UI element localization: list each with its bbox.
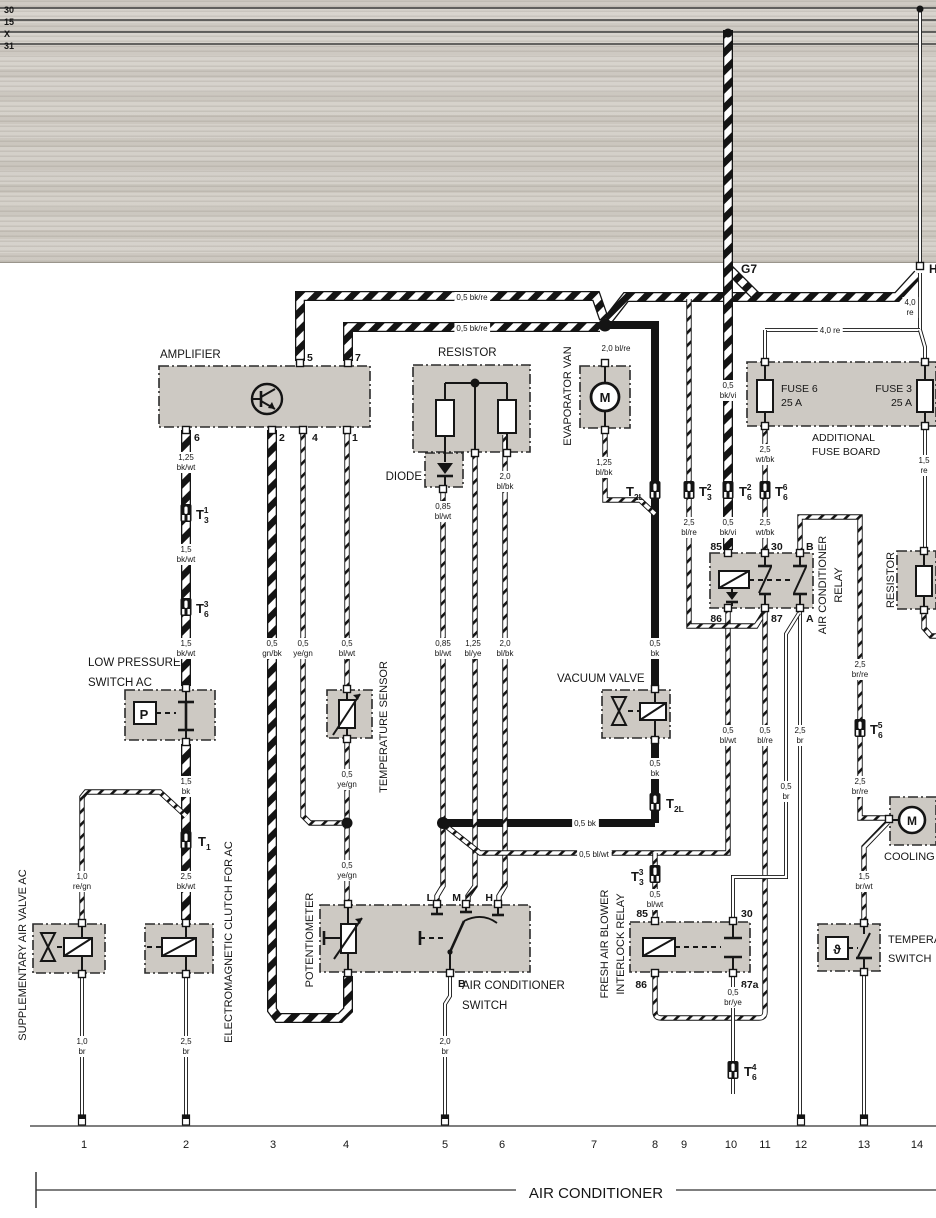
node-h: H <box>929 262 936 276</box>
wire_labels: 2,0 bl/re <box>602 344 631 353</box>
terminal_labels: 86 <box>635 979 647 991</box>
connector-t6-4 <box>728 1061 739 1079</box>
conn-t3-3: T33 <box>631 867 644 887</box>
transistor-symbol <box>251 384 282 414</box>
terminal_labels: 7 <box>355 352 361 364</box>
label-low-pressure-2: SWITCH AC <box>88 677 152 689</box>
label-amplifier: AMPLIFIER <box>160 349 221 361</box>
label-fuse3-amps: 25 A <box>891 397 912 409</box>
wire-amp4-column-overlay <box>303 430 342 823</box>
label-potentiometer: POTENTIOMETER <box>304 893 316 988</box>
terminal_labels: B <box>806 541 814 553</box>
track_numbers: 3 <box>270 1139 276 1151</box>
label-low-pressure-1: LOW PRESSURE <box>88 657 181 669</box>
label-fuse-board: FUSE BOARD <box>812 446 881 458</box>
wire-regn-branch-overlay <box>82 792 186 920</box>
track_numbers: 6 <box>499 1139 505 1151</box>
wire-blwt-horizontal <box>446 611 728 853</box>
terminal_labels: 30 <box>741 908 753 920</box>
wire_labels: 1,25bk/wt <box>177 453 196 472</box>
label-evaporator-van: EVAPORATOR VAN <box>562 346 574 445</box>
conn-t6-3: T63 <box>196 599 209 619</box>
terminal_labels: 2 <box>279 432 285 444</box>
track_numbers: 14 <box>911 1139 923 1151</box>
label-fuse6-amps: 25 A <box>781 397 802 409</box>
label-cooling-fan: COOLING FAN <box>884 851 936 863</box>
label-fuse3: FUSE 3 <box>875 383 912 395</box>
conn-t1: T1 <box>198 834 211 852</box>
footer-bracket <box>36 1172 936 1208</box>
wire-blye-to-M-overlay <box>468 453 475 902</box>
terminal_labels: 85 <box>710 541 722 553</box>
label-fresh-air-1: FRESH AIR BLOWER <box>599 890 611 999</box>
junction-dot <box>471 379 480 388</box>
terminal_labels: 1 <box>352 432 358 444</box>
terminal_labels: A <box>806 613 814 625</box>
track_numbers: 12 <box>795 1139 807 1151</box>
terminal_labels: B <box>458 978 466 990</box>
footer-title: AIR CONDITIONER <box>529 1185 663 1202</box>
conn-t6-2: T62 <box>739 482 752 502</box>
bus-lines <box>0 8 936 44</box>
connector-t6-5 <box>855 719 866 737</box>
bus-label-x: X <box>4 29 10 39</box>
conn-t3-1: T31 <box>196 505 209 525</box>
track_numbers: 13 <box>858 1139 870 1151</box>
label-temp-switch-1: TEMPERATURE <box>888 934 936 946</box>
wire_labels: 4,0 re <box>820 326 841 335</box>
terminal_labels: M <box>452 892 461 904</box>
conn-t3-2: T32 <box>699 482 712 502</box>
terminal_labels: 6 <box>194 432 200 444</box>
wiring-diagram-page: 3015X31G7HAMPLIFIERRESISTORDIODEEVAPORAT… <box>0 0 936 1218</box>
connector-t6-3 <box>181 598 192 616</box>
conn-t6-6: T66 <box>775 482 788 502</box>
track-line <box>30 1115 936 1126</box>
track_numbers: 11 <box>759 1139 770 1151</box>
track_numbers: 1 <box>81 1139 87 1151</box>
wire_labels: 0,5 bl/wt <box>579 850 610 859</box>
node-g7: G7 <box>741 262 757 276</box>
terminal_labels: L <box>427 892 434 904</box>
label-resistor-right: RESISTOR <box>885 552 897 608</box>
wire_labels: 0,85bl/wt <box>435 639 452 658</box>
bus-label-15: 15 <box>4 17 14 27</box>
wire_labels: 0,85bl/wt <box>435 502 452 521</box>
connector-t3-3 <box>650 865 661 883</box>
wire-top-right-run-overlay <box>608 274 918 320</box>
wire_labels: 1,25bl/ye <box>465 639 482 658</box>
wire-regn-branch <box>82 792 186 920</box>
label-vacuum-valve: VACUUM VALVE <box>557 673 645 685</box>
evap-motor-m: M <box>600 390 611 405</box>
wire_labels: 0,5 bk/re <box>456 324 488 333</box>
label-clutch: ELECTROMAGNETIC CLUTCH FOR AC <box>223 841 235 1043</box>
connector-t2l-lower <box>650 793 661 811</box>
track_numbers: 2 <box>183 1139 189 1151</box>
wire-resistor-right-out-overlay <box>924 612 936 636</box>
connector-t2l-upper <box>650 481 661 499</box>
connector-t1 <box>181 831 192 849</box>
connector-t6-2 <box>723 481 734 499</box>
wire-blbk-to-H-overlay <box>499 435 505 902</box>
label-ac-relay-2: RELAY <box>833 567 845 603</box>
label-temp-switch-2: SWITCH <box>888 953 931 965</box>
conn-t6-5: T65 <box>870 720 883 740</box>
terminal_labels: 87 <box>771 613 783 625</box>
terminal_labels: H <box>485 892 493 904</box>
track_numbers: 8 <box>652 1139 658 1151</box>
connector-t6-6 <box>760 481 771 499</box>
track_numbers: 4 <box>343 1139 349 1151</box>
conn-t6-4: T64 <box>744 1062 757 1082</box>
label-ac-switch-1: AIR CONDITIONER <box>462 980 565 992</box>
track_numbers: 7 <box>591 1139 597 1151</box>
wire_labels: 1,25bl/bk <box>596 458 614 477</box>
terminal_labels: 86 <box>710 613 722 625</box>
label-ac-switch-2: SWITCH <box>462 1000 507 1012</box>
track_numbers: 10 <box>725 1139 737 1151</box>
label-supp-air-valve: SUPPLEMENTARY AIR VALVE AC <box>17 869 29 1040</box>
wire_labels: 0,5 bk <box>574 819 597 828</box>
air-conditioner-wiring-diagram: 3015X31G7HAMPLIFIERRESISTORDIODEEVAPORAT… <box>0 0 936 1218</box>
fan-motor-m: M <box>907 814 917 828</box>
track_numbers: 5 <box>442 1139 448 1151</box>
terminal_labels: 30 <box>771 541 783 553</box>
connector-t3-2 <box>684 481 695 499</box>
wire-blwt-horizontal-overlay <box>446 611 728 853</box>
track_numbers: 9 <box>681 1139 687 1151</box>
wire_labels: 0,5 bk/re <box>456 293 488 302</box>
temp-switch-theta: ϑ <box>833 942 841 957</box>
bus-label-31: 31 <box>4 41 14 51</box>
label-fresh-air-2: INTERLOCK RELAY <box>615 893 627 995</box>
wire-amp4-column <box>303 430 342 823</box>
label-additional: ADDITIONAL <box>812 432 875 444</box>
conn-t2l-lower: T2L <box>666 796 684 814</box>
lp-switch-p: P <box>140 707 149 722</box>
bus-label-30: 30 <box>4 5 14 15</box>
connector-t3-1 <box>181 504 192 522</box>
label-fuse6: FUSE 6 <box>781 383 818 395</box>
terminal_labels: 5 <box>307 352 313 364</box>
terminal_labels: 4 <box>312 432 318 444</box>
label-resistor: RESISTOR <box>438 347 497 359</box>
label-temp-sensor: TEMPERATURE SENSOR <box>378 661 390 793</box>
label-ac-relay-1: AIR CONDITIONER <box>817 536 829 634</box>
label-diode: DIODE <box>386 471 423 483</box>
